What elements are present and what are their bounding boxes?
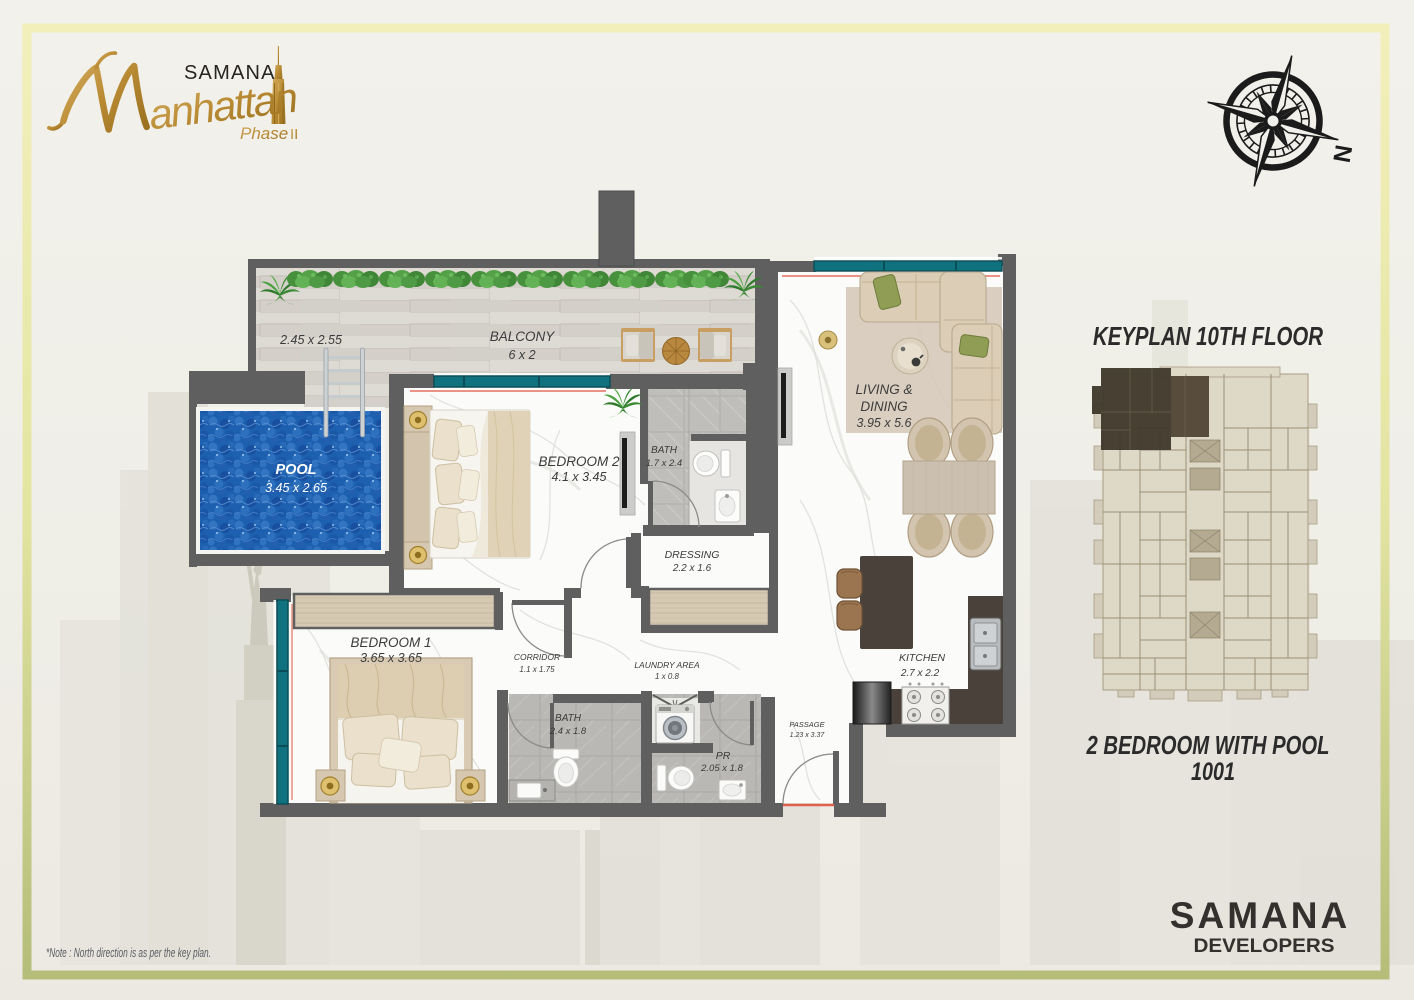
svg-text:KITCHEN: KITCHEN (899, 652, 946, 664)
svg-text:1.7 x 2.4: 1.7 x 2.4 (646, 458, 682, 469)
svg-text:1001: 1001 (1191, 758, 1235, 786)
svg-text:2.4 x 1.8: 2.4 x 1.8 (549, 726, 587, 737)
svg-text:3.45 x 2.65: 3.45 x 2.65 (265, 481, 327, 495)
svg-text:4.1 x 3.45: 4.1 x 3.45 (552, 470, 607, 484)
svg-text:PASSAGE: PASSAGE (789, 720, 825, 729)
svg-text:PR: PR (716, 750, 731, 762)
svg-text:1.1 x 1.75: 1.1 x 1.75 (519, 665, 555, 674)
svg-text:SAMANA: SAMANA (1170, 895, 1350, 936)
svg-text:LIVING &: LIVING & (855, 382, 912, 397)
svg-text:*Note : North direction is as: *Note : North direction is as per the ke… (46, 946, 211, 960)
svg-text:CORRIDOR: CORRIDOR (514, 652, 560, 662)
svg-text:2.7 x 2.2: 2.7 x 2.2 (900, 668, 940, 679)
svg-text:DEVELOPERS: DEVELOPERS (1194, 935, 1335, 957)
svg-text:BEDROOM 1: BEDROOM 1 (350, 635, 431, 650)
svg-text:Phase: Phase (240, 124, 288, 143)
svg-text:II: II (290, 126, 298, 143)
svg-text:BEDROOM 2: BEDROOM 2 (538, 454, 620, 469)
svg-text:DRESSING: DRESSING (665, 549, 720, 561)
svg-text:3.65 x 3.65: 3.65 x 3.65 (360, 651, 422, 665)
svg-text:BATH: BATH (651, 445, 678, 456)
svg-text:2.45 x 2.55: 2.45 x 2.55 (279, 333, 342, 347)
svg-text:2.2 x 1.6: 2.2 x 1.6 (672, 563, 712, 574)
svg-text:KEYPLAN 10TH FLOOR: KEYPLAN 10TH FLOOR (1093, 321, 1323, 351)
svg-text:LAUNDRY AREA: LAUNDRY AREA (634, 660, 700, 670)
svg-text:1 x 0.8: 1 x 0.8 (655, 672, 680, 681)
svg-text:3.95 x 5.6: 3.95 x 5.6 (857, 416, 912, 430)
svg-text:BALCONY: BALCONY (490, 329, 556, 344)
svg-text:1.23 x 3.37: 1.23 x 3.37 (790, 732, 826, 739)
svg-text:6 x 2: 6 x 2 (508, 348, 535, 362)
svg-text:2.05 x 1.8: 2.05 x 1.8 (700, 763, 743, 774)
svg-text:2 BEDROOM WITH POOL: 2 BEDROOM WITH POOL (1086, 730, 1330, 760)
svg-text:DINING: DINING (860, 399, 907, 414)
svg-text:POOL: POOL (275, 462, 316, 478)
svg-text:BATH: BATH (555, 713, 582, 724)
